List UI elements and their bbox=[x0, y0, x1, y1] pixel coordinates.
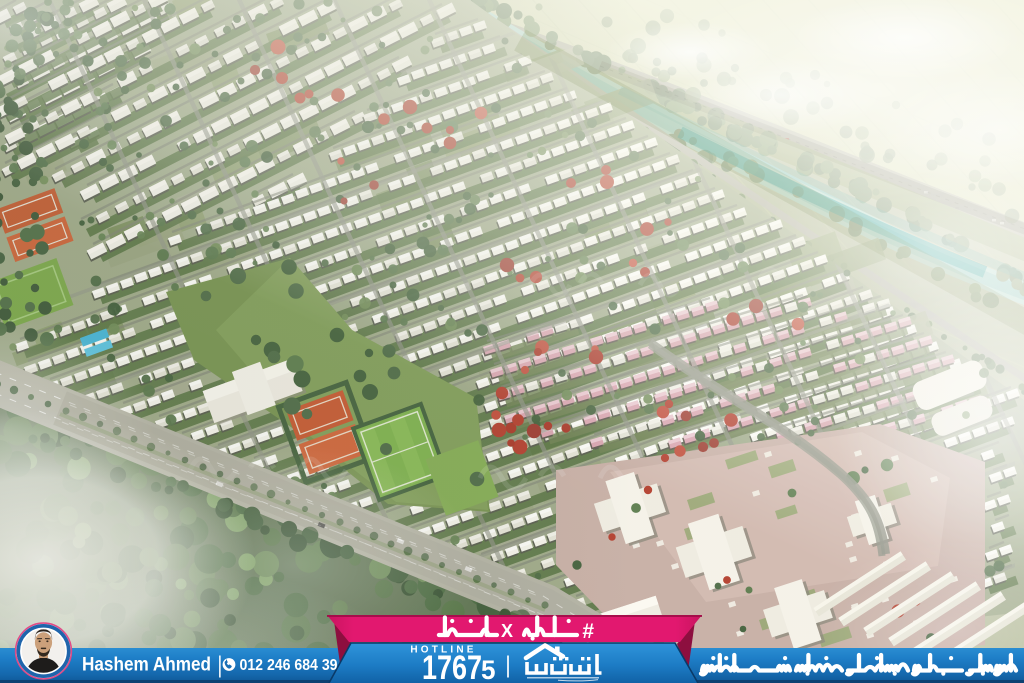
svg-text:1767: 1767 bbox=[422, 649, 482, 683]
svg-text:5: 5 bbox=[481, 655, 496, 683]
svg-text:Hashem Ahmed: Hashem Ahmed bbox=[82, 654, 211, 676]
svg-text:#: # bbox=[582, 620, 594, 643]
svg-text:X: X bbox=[501, 621, 513, 641]
svg-text:012 246 684 39: 012 246 684 39 bbox=[240, 657, 338, 674]
